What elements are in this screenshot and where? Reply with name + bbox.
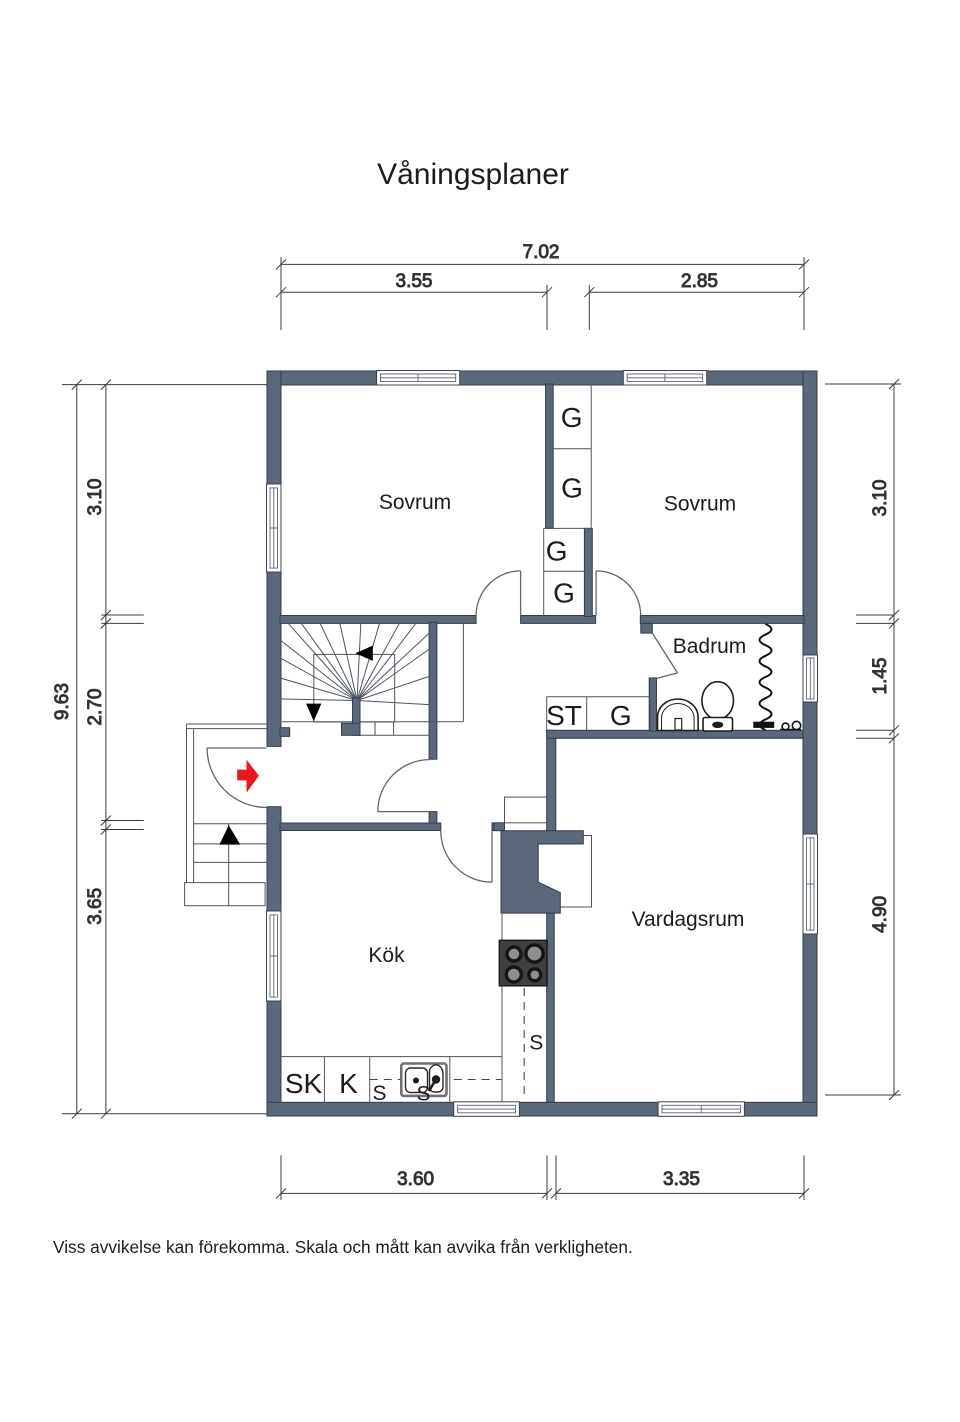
svg-text:ST: ST bbox=[546, 700, 582, 731]
svg-text:Viss avvikelse kan förekomma.: Viss avvikelse kan förekomma. Skala och … bbox=[53, 1237, 633, 1257]
svg-text:Sovrum: Sovrum bbox=[379, 491, 451, 514]
svg-text:9.63: 9.63 bbox=[52, 683, 73, 720]
svg-text:G: G bbox=[561, 473, 583, 504]
svg-text:Sovrum: Sovrum bbox=[664, 493, 736, 516]
svg-text:Badrum: Badrum bbox=[673, 635, 747, 658]
svg-text:G: G bbox=[546, 536, 568, 567]
svg-text:G: G bbox=[553, 578, 575, 609]
svg-text:S: S bbox=[529, 1031, 543, 1054]
svg-text:S: S bbox=[372, 1082, 386, 1105]
svg-text:K: K bbox=[339, 1068, 358, 1099]
svg-text:G: G bbox=[610, 700, 632, 731]
svg-text:7.02: 7.02 bbox=[523, 242, 560, 263]
svg-text:Kök: Kök bbox=[368, 944, 405, 967]
svg-text:3.10: 3.10 bbox=[870, 480, 891, 517]
svg-text:4.90: 4.90 bbox=[870, 896, 891, 933]
svg-text:3.65: 3.65 bbox=[85, 888, 106, 925]
svg-text:3.60: 3.60 bbox=[397, 1169, 434, 1190]
svg-text:SK: SK bbox=[285, 1068, 323, 1099]
svg-text:Våningsplaner: Våningsplaner bbox=[377, 158, 569, 191]
svg-text:G: G bbox=[561, 402, 583, 433]
svg-text:3.10: 3.10 bbox=[85, 479, 106, 516]
svg-text:2.70: 2.70 bbox=[85, 689, 106, 726]
svg-text:2.85: 2.85 bbox=[681, 271, 718, 292]
svg-text:1.45: 1.45 bbox=[870, 658, 891, 695]
svg-text:S: S bbox=[416, 1083, 430, 1106]
svg-text:Vardagsrum: Vardagsrum bbox=[632, 908, 745, 931]
svg-text:3.55: 3.55 bbox=[396, 271, 433, 292]
svg-text:3.35: 3.35 bbox=[663, 1169, 700, 1190]
